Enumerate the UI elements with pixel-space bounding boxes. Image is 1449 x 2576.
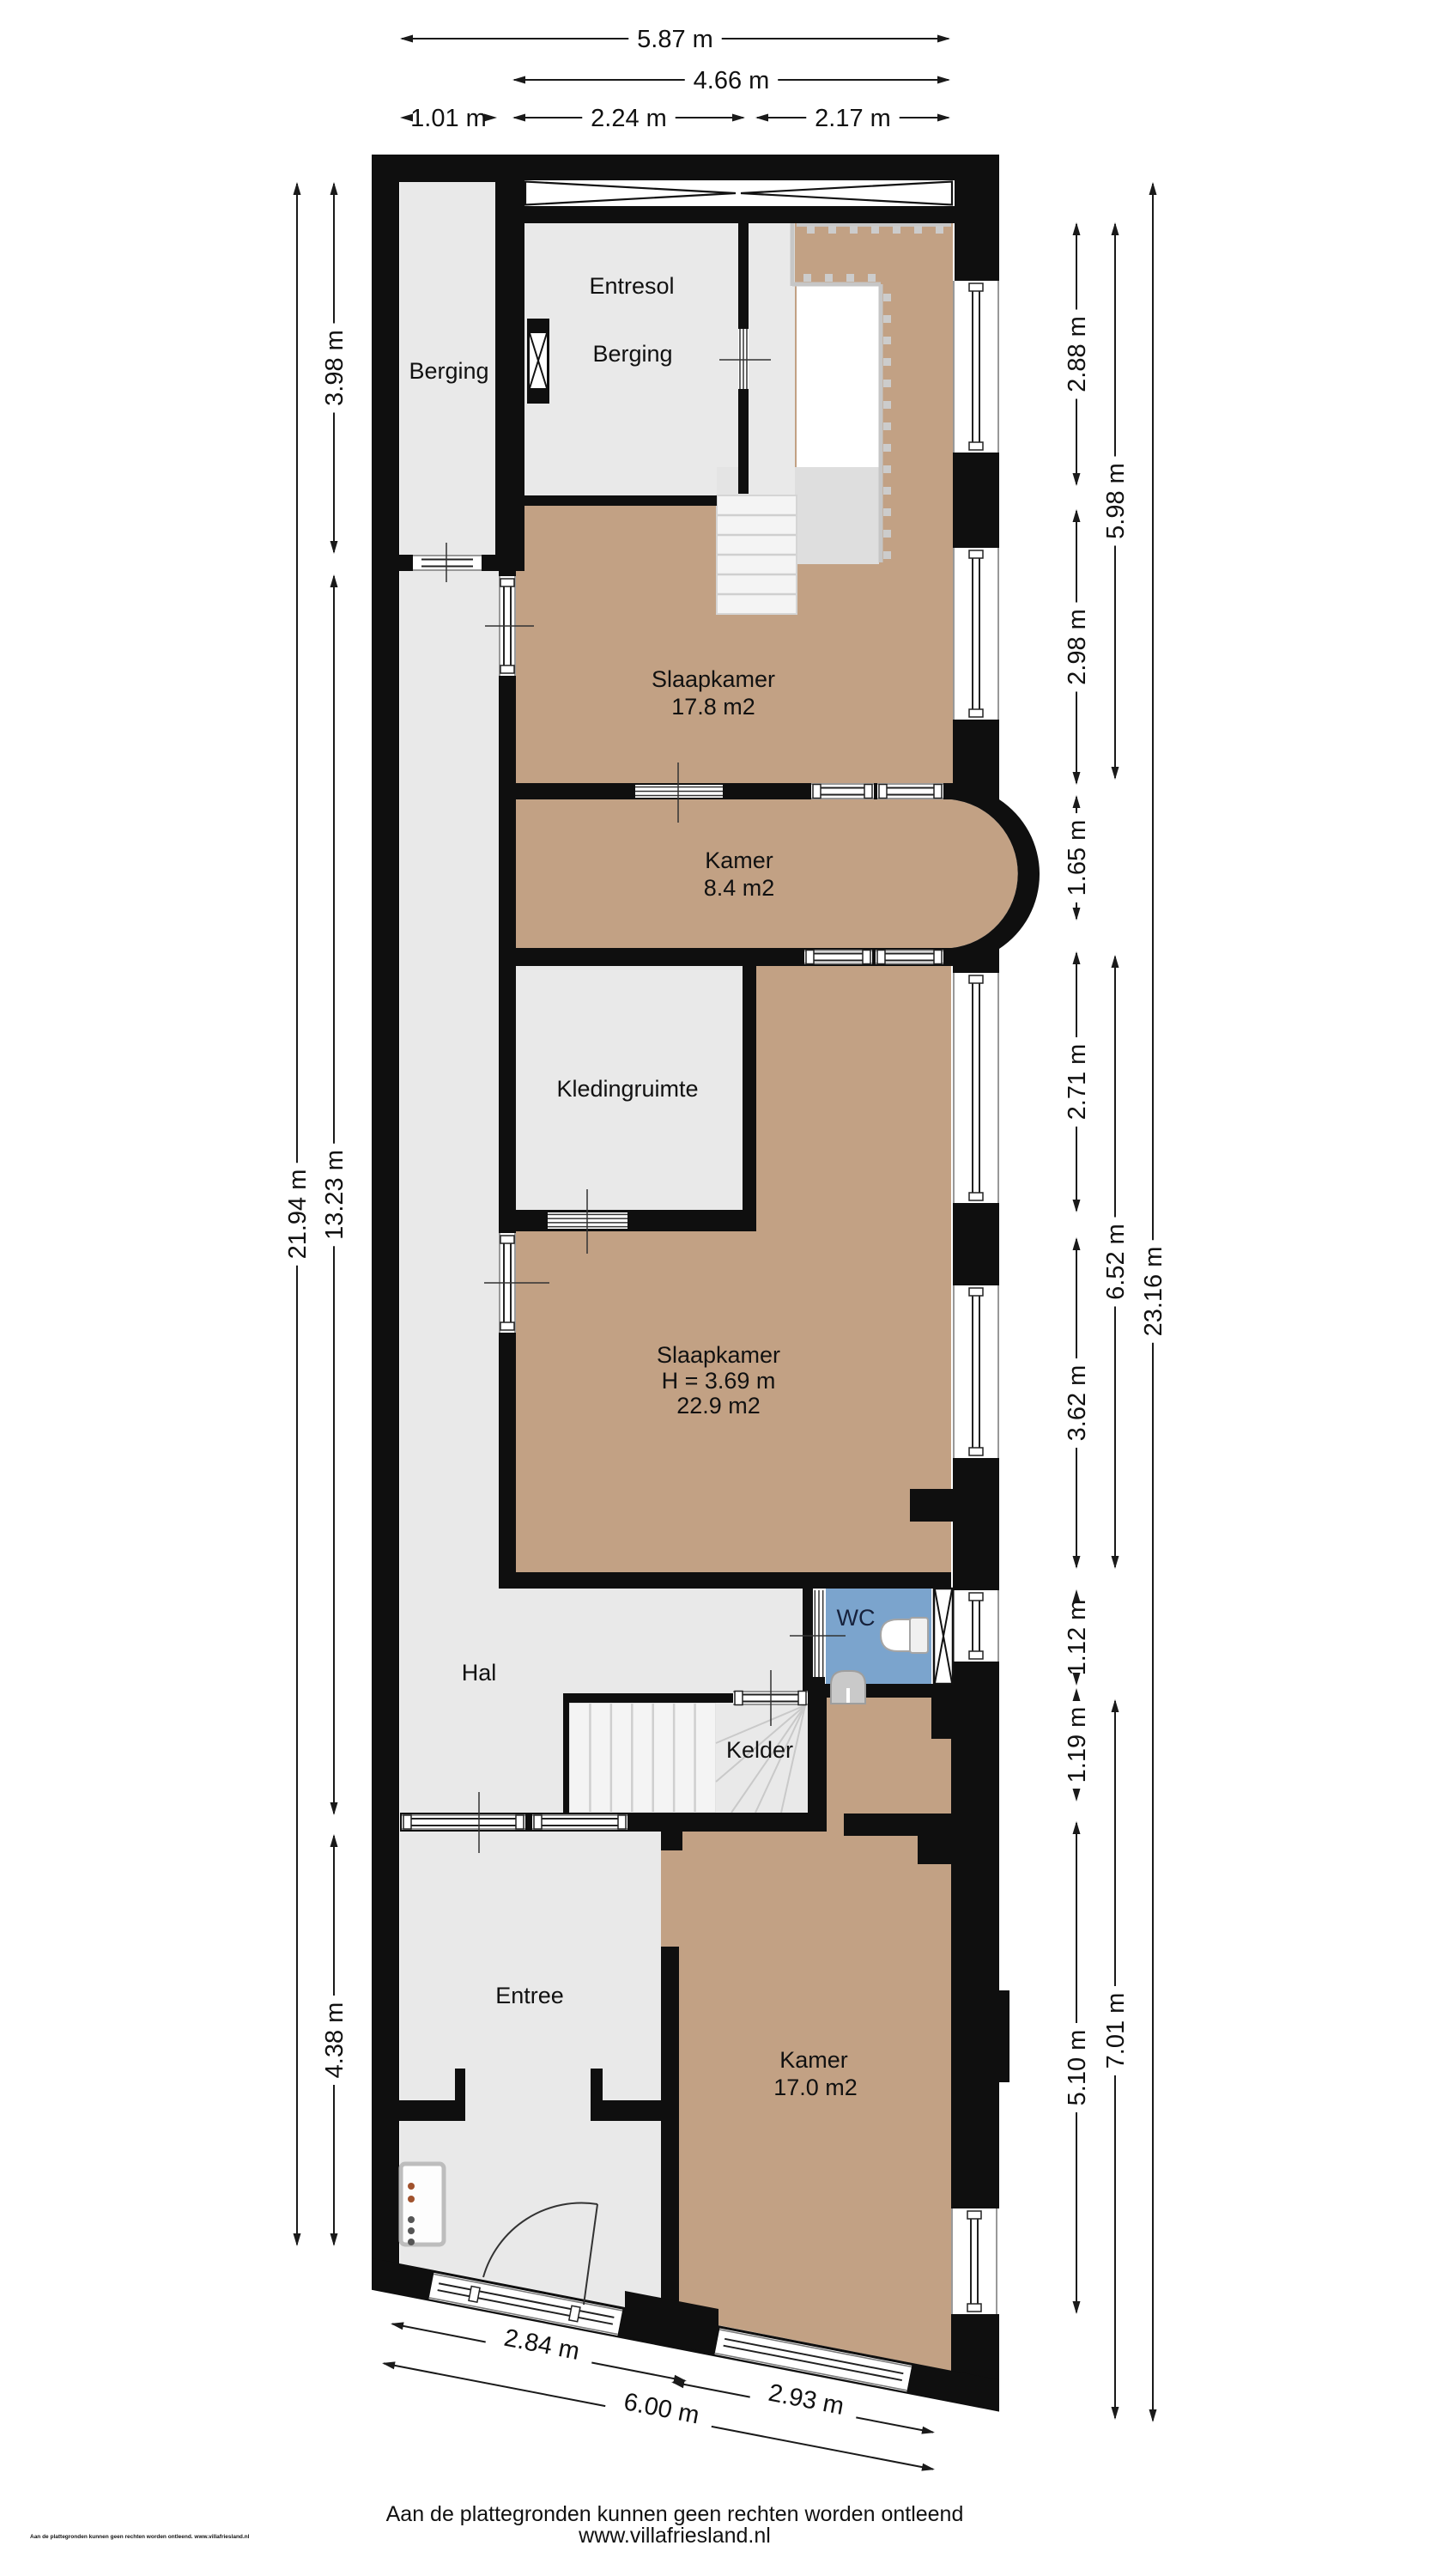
svg-text:2.71 m: 2.71 m <box>1064 1044 1091 1121</box>
svg-text:Kamer: Kamer <box>779 2047 848 2073</box>
svg-text:2.88 m: 2.88 m <box>1064 316 1091 392</box>
svg-text:17.0 m2: 17.0 m2 <box>773 2075 858 2100</box>
svg-text:1.01 m: 1.01 m <box>410 105 487 132</box>
svg-text:2.17 m: 2.17 m <box>815 105 891 132</box>
svg-text:Kelder: Kelder <box>726 1737 793 1763</box>
svg-text:Aan de plattegronden kunnen ge: Aan de plattegronden kunnen geen rechten… <box>30 2534 250 2540</box>
svg-text:Entree: Entree <box>495 1983 564 2008</box>
svg-text:4.38 m: 4.38 m <box>321 2002 349 2079</box>
svg-text:1.19 m: 1.19 m <box>1064 1707 1091 1783</box>
svg-text:Kledingruimte: Kledingruimte <box>556 1076 698 1102</box>
svg-text:H = 3.69 m: H = 3.69 m <box>662 1368 776 1394</box>
svg-text:5.98 m: 5.98 m <box>1102 463 1130 539</box>
svg-text:7.01 m: 7.01 m <box>1102 1993 1130 2069</box>
svg-text:WC: WC <box>837 1605 876 1631</box>
svg-text:Slaapkamer: Slaapkamer <box>652 666 775 692</box>
svg-text:Hal: Hal <box>462 1660 497 1686</box>
svg-text:5.87 m: 5.87 m <box>637 26 713 53</box>
svg-text:Kamer: Kamer <box>705 848 773 873</box>
svg-text:2.98 m: 2.98 m <box>1064 609 1091 685</box>
svg-text:2.24 m: 2.24 m <box>591 105 667 132</box>
svg-text:Aan de plattegronden kunnen ge: Aan de plattegronden kunnen geen rechten… <box>386 2502 964 2526</box>
svg-text:Slaapkamer: Slaapkamer <box>657 1342 780 1368</box>
svg-text:www.villafriesland.nl: www.villafriesland.nl <box>578 2524 771 2548</box>
svg-text:5.10 m: 5.10 m <box>1064 2030 1091 2106</box>
svg-text:22.9 m2: 22.9 m2 <box>676 1393 761 1419</box>
svg-text:3.98 m: 3.98 m <box>321 330 349 406</box>
svg-text:1.12 m: 1.12 m <box>1064 1600 1091 1676</box>
svg-text:1.65 m: 1.65 m <box>1064 820 1091 896</box>
svg-text:13.23 m: 13.23 m <box>321 1150 349 1240</box>
svg-text:3.62 m: 3.62 m <box>1064 1365 1091 1442</box>
svg-text:17.8 m2: 17.8 m2 <box>671 694 755 720</box>
svg-text:Entresol: Entresol <box>589 273 674 299</box>
svg-text:Berging: Berging <box>409 358 488 384</box>
svg-text:8.4 m2: 8.4 m2 <box>704 875 775 901</box>
svg-text:Berging: Berging <box>592 341 672 367</box>
svg-text:4.66 m: 4.66 m <box>694 67 770 94</box>
svg-text:23.16 m: 23.16 m <box>1140 1247 1167 1337</box>
svg-text:6.52 m: 6.52 m <box>1102 1224 1130 1300</box>
svg-text:21.94 m: 21.94 m <box>284 1170 312 1260</box>
